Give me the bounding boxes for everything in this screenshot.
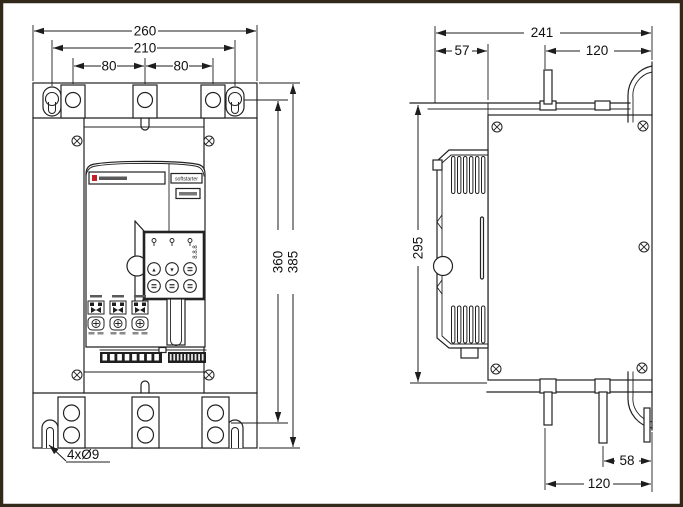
dim-side-tab-offset: 58 <box>619 453 634 468</box>
busbar-terminal-bottom <box>132 397 159 448</box>
brand-logo-mark <box>92 175 97 181</box>
model-text-smudge <box>179 192 197 196</box>
screw-icon <box>637 363 647 373</box>
bracket-tab <box>644 408 650 442</box>
mounting-tab-bottom-right <box>599 392 607 443</box>
product-label: softstarter <box>175 177 198 183</box>
keypad-button <box>148 280 161 293</box>
busbar-terminal-top <box>61 85 85 118</box>
screw-icon <box>204 370 214 380</box>
dim-side-depth-top: 120 <box>586 43 609 58</box>
screw-icon <box>72 136 82 146</box>
dim-side-height: 295 <box>411 237 426 260</box>
side-body <box>488 115 652 380</box>
mounting-tab-top <box>544 70 552 104</box>
dim-side-depth-front: 57 <box>454 43 469 58</box>
brand-text-smudge <box>99 177 127 181</box>
dim-front-width-mount: 210 <box>134 41 157 56</box>
terminal-strip-left <box>100 352 162 363</box>
dim-front-height-mount: 360 <box>271 251 286 274</box>
side-view <box>410 62 652 443</box>
bottom-stub-side <box>461 348 478 358</box>
busbar-terminal-bottom <box>202 397 229 448</box>
segment-display: 8.8.8 <box>193 245 199 259</box>
dim-front-height-overall: 385 <box>286 251 301 274</box>
busbar-terminal-top <box>201 85 225 118</box>
screw-icon <box>491 364 501 374</box>
screw-icon <box>639 242 649 252</box>
keypad-button-fn <box>184 263 197 276</box>
mounting-tab-bottom-left <box>544 392 552 425</box>
screw-icon <box>204 136 214 146</box>
dim-front-pitch-left: 80 <box>101 59 116 74</box>
dim-front-mount-holes: 4xØ9 <box>67 447 99 462</box>
side-front-section <box>433 150 488 358</box>
dimension-drawing-page: softstarter 8.8.8 ▲ ▼ <box>0 0 683 507</box>
dimension-drawing: softstarter 8.8.8 ▲ ▼ <box>0 0 683 507</box>
down-arrow-icon: ▼ <box>169 267 174 273</box>
keypad-panel: 8.8.8 ▲ ▼ <box>144 232 204 299</box>
screw-icon <box>638 121 648 131</box>
dim-front-width-overall: 260 <box>134 24 157 39</box>
keyhole-slot-icon <box>43 87 61 116</box>
keypad-button <box>184 280 197 293</box>
keypad-button <box>166 280 179 293</box>
dim-side-depth-overall: 241 <box>531 25 554 40</box>
screw-icon <box>72 370 82 380</box>
front-view: softstarter 8.8.8 ▲ ▼ <box>33 83 257 448</box>
screw-icon <box>492 122 502 132</box>
hook-bracket-top <box>628 66 652 122</box>
keyhole-slot-icon <box>226 87 244 116</box>
mounting-slot-icon <box>42 420 58 448</box>
cable-channel <box>167 299 185 346</box>
dim-front-pitch-right: 80 <box>173 59 188 74</box>
dim-side-depth-bottom: 120 <box>588 476 611 491</box>
up-arrow-icon: ▲ <box>151 267 156 273</box>
door-knob-side <box>434 257 453 276</box>
busbar-terminal-top <box>133 85 157 118</box>
busbar-terminal-bottom <box>58 397 85 448</box>
terminal-strips <box>100 348 206 364</box>
